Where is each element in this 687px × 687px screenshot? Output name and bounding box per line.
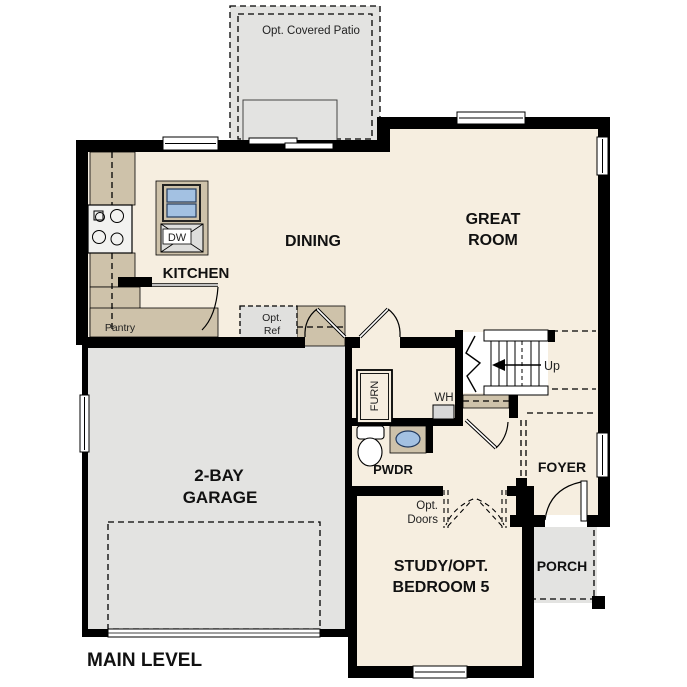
wall-stair-left (455, 330, 463, 426)
stair-landing-bottom (484, 386, 548, 395)
dining-label: DINING (285, 233, 341, 250)
stair-landing-top (484, 330, 548, 341)
water-heater-box (433, 405, 454, 419)
wall-porch-corner (592, 596, 605, 609)
toilet-tank (357, 426, 384, 439)
stove (88, 205, 132, 253)
water-heater-label: WH (434, 392, 453, 404)
opt-doors-label-2: Doors (407, 514, 438, 526)
foyer-label: FOYER (538, 459, 586, 475)
study-label-2: BEDROOM 5 (393, 579, 490, 596)
wall-stair-stub (548, 330, 555, 342)
opt-doors-label-1: Opt. (416, 500, 438, 512)
kitchen-label: KITCHEN (163, 265, 230, 282)
floor-plan: Opt. Covered Patio DW (0, 0, 687, 687)
pwdr-sink (396, 431, 420, 447)
wall-garage-top (88, 337, 305, 348)
garage-label-2: GARAGE (183, 488, 258, 507)
stove-body (88, 205, 132, 253)
garage-label-1: 2-BAY (194, 466, 244, 485)
sink-bowl-bottom (167, 204, 196, 217)
sink-bowl-top (167, 189, 196, 202)
furnace-label: FURN (369, 381, 381, 412)
stair-up-label: Up (544, 359, 560, 373)
wall-pwdr-stub (426, 426, 433, 453)
front-door-leaf (581, 481, 587, 521)
wall-study-left (348, 486, 357, 678)
opt-ref-label-2: Ref (264, 325, 280, 337)
opt-ref-label-1: Opt. (262, 312, 282, 324)
covered-patio: Opt. Covered Patio (230, 6, 380, 147)
wall-study-right (522, 486, 534, 678)
wall-top-kitchen (76, 140, 385, 152)
kitchen-island: DW (156, 181, 208, 255)
patio-slab (243, 100, 337, 144)
patio-label: Opt. Covered Patio (262, 25, 360, 37)
wall-front-door-left (510, 515, 545, 527)
wall-pantry-stub (118, 277, 152, 287)
porch-label: PORCH (537, 558, 588, 574)
wall-front-door-right (587, 515, 610, 527)
great-room-label-2: ROOM (468, 232, 518, 249)
wall-left-main (76, 140, 88, 345)
plan-title: MAIN LEVEL (87, 650, 202, 671)
great-room-label-1: GREAT (466, 211, 521, 228)
wall-garage-left (82, 345, 88, 637)
pantry-label: Pantry (105, 322, 136, 334)
wall-hall-top (400, 337, 462, 348)
dishwasher-label: DW (168, 232, 187, 244)
slider-panel-2 (285, 143, 333, 149)
study-label-1: STUDY/OPT. (394, 558, 488, 575)
garage-door-opening (108, 629, 320, 637)
powder-label: PWDR (373, 462, 413, 477)
